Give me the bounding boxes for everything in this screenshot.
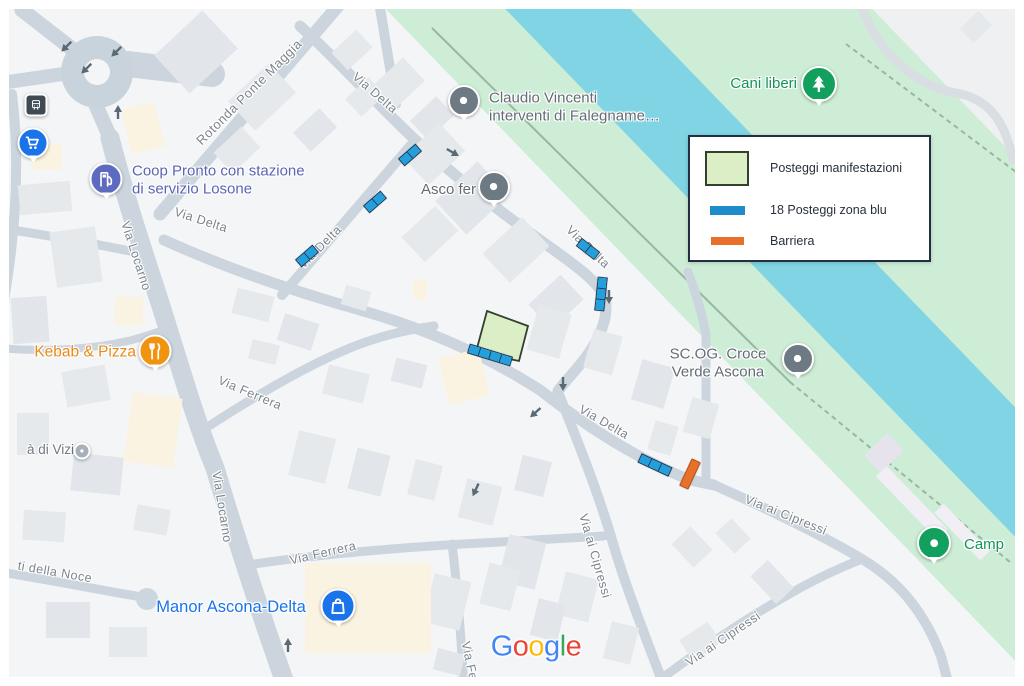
map-legend: Posteggi manifestazioni 18 Posteggi zona…	[688, 135, 931, 262]
food-icon[interactable]	[139, 335, 172, 368]
google-logo-letter: o	[513, 631, 529, 663]
legend-swatch-event-area	[705, 151, 749, 186]
legend-swatch-blue-zone	[710, 206, 745, 215]
poi-label-asco-fer[interactable]: Asco fer	[421, 181, 476, 199]
legend-label-barrier: Barriera	[770, 234, 814, 248]
bag-icon[interactable]	[321, 589, 356, 624]
dot-icon[interactable]	[448, 85, 480, 117]
cart-icon[interactable]	[18, 128, 49, 159]
building	[109, 627, 147, 657]
google-logo[interactable]: Google	[491, 631, 582, 664]
bus-icon[interactable]	[25, 94, 48, 117]
poi-label-coop-pronto[interactable]: Coop Pronto con stazionedi servizio Loso…	[132, 163, 305, 200]
building	[49, 226, 102, 288]
poi-label-claudio-vincenti[interactable]: Claudio Vincentiinterventi di Falegname…	[489, 90, 660, 127]
google-logo-letter: g	[544, 631, 560, 663]
dot-icon[interactable]	[478, 171, 510, 203]
building	[18, 181, 72, 215]
map-screenshot: Rotonda Ponte MaggiaVia DeltaVia DeltaVi…	[0, 0, 1024, 686]
building	[123, 392, 182, 468]
legend-label-blue-zone: 18 Posteggi zona blu	[770, 203, 887, 217]
poi-label-camping[interactable]: Camp	[964, 536, 1004, 554]
tree-icon[interactable]	[801, 66, 837, 102]
poi-label-manor[interactable]: Manor Ascona-Delta	[156, 597, 306, 617]
google-logo-letter: G	[491, 631, 513, 663]
building	[61, 364, 111, 407]
building	[10, 296, 49, 344]
poi-label-a-di-vizi[interactable]: à di Vizi	[27, 442, 74, 458]
cul-de-sac	[136, 588, 158, 610]
google-logo-letter: e	[566, 631, 582, 663]
fuel-icon[interactable]	[90, 163, 123, 196]
dot-icon[interactable]	[917, 526, 951, 560]
building	[413, 279, 427, 299]
building	[46, 602, 90, 638]
building	[115, 297, 143, 325]
poi-label-kebab-pizza[interactable]: Kebab & Pizza	[34, 344, 136, 363]
legend-label-event-parking: Posteggi manifestazioni	[770, 161, 902, 175]
google-logo-letter: o	[528, 631, 544, 663]
road	[8, 74, 63, 82]
legend-swatch-barrier	[711, 237, 744, 245]
poi-label-croce-verde[interactable]: SC.OG. CroceVerde Ascona	[670, 346, 767, 383]
roundabout-island	[84, 59, 110, 85]
dot-icon[interactable]	[74, 443, 91, 460]
poi-label-cani-liberi[interactable]: Cani liberi	[730, 75, 797, 93]
dot-icon[interactable]	[782, 343, 814, 375]
building	[22, 510, 66, 543]
